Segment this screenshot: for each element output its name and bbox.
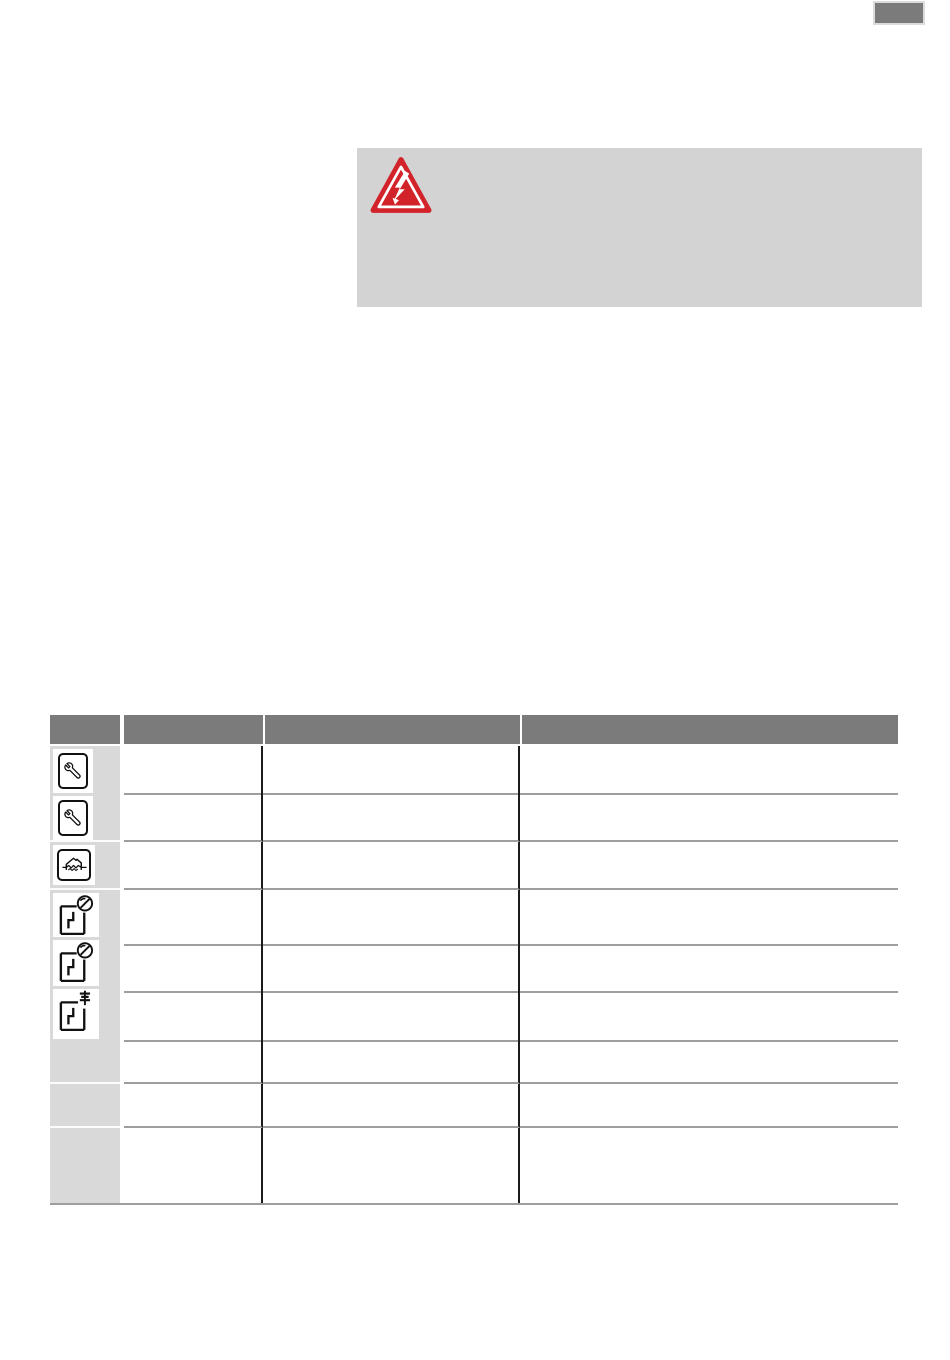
cell-col3	[263, 986, 520, 1042]
table-row	[50, 746, 898, 793]
header-cell-symbol	[50, 715, 120, 744]
cell-col3	[263, 1084, 520, 1128]
symbols-table	[50, 715, 898, 1205]
cell-col4	[520, 1039, 898, 1084]
table-row	[50, 937, 898, 986]
cell-symbol	[50, 793, 120, 842]
wrench-icon-frame	[58, 800, 88, 836]
manual-page	[0, 0, 950, 1360]
cell-col2	[124, 1084, 263, 1128]
wrench-icon	[53, 796, 93, 840]
cell-col4	[520, 937, 898, 993]
table-row	[50, 1039, 898, 1084]
cell-col2	[124, 793, 263, 842]
wrench-icon	[53, 749, 93, 793]
moisture-protection-icon	[53, 845, 95, 885]
cell-symbol	[50, 746, 120, 795]
cell-col2	[124, 937, 263, 993]
cell-col2	[124, 1039, 263, 1084]
table-row	[50, 1084, 898, 1128]
cell-col4	[520, 793, 898, 842]
cell-col2	[124, 986, 263, 1042]
table-row	[50, 842, 898, 890]
table-header-row	[50, 715, 898, 744]
warning-callout	[357, 148, 922, 307]
cell-col3	[263, 842, 520, 890]
page-number-badge	[875, 3, 923, 23]
moisture-protection-icon-frame	[57, 849, 91, 881]
cell-col2	[124, 1128, 263, 1203]
pressure-switch-icon	[53, 940, 99, 991]
cell-symbol	[50, 986, 120, 1042]
cell-col3	[263, 937, 520, 993]
high-voltage-warning-icon	[370, 156, 432, 215]
cell-col2	[124, 842, 263, 890]
header-cell-3	[263, 715, 520, 744]
cell-col3	[263, 1039, 520, 1084]
cell-col4	[520, 986, 898, 1042]
table-row	[50, 986, 898, 1039]
cell-col2	[124, 746, 263, 795]
cell-col4	[520, 1084, 898, 1128]
cell-symbol	[50, 842, 120, 890]
level-electrode-switch-icon	[53, 989, 99, 1040]
table-body	[50, 746, 898, 1205]
header-cell-4	[520, 715, 898, 744]
table-row	[50, 793, 898, 842]
header-cell-2	[124, 715, 263, 744]
cell-symbol	[50, 1128, 120, 1203]
cell-col3	[263, 793, 520, 842]
cell-symbol	[50, 1084, 120, 1128]
cell-col4	[520, 842, 898, 890]
cell-col3	[263, 746, 520, 795]
cell-col4	[520, 746, 898, 795]
table-row	[50, 1128, 898, 1203]
cell-col3	[263, 1128, 520, 1203]
cell-symbol	[50, 1039, 120, 1084]
wrench-icon-frame	[58, 753, 88, 789]
table-row	[50, 890, 898, 937]
cell-symbol	[50, 937, 120, 993]
cell-col4	[520, 1128, 898, 1203]
